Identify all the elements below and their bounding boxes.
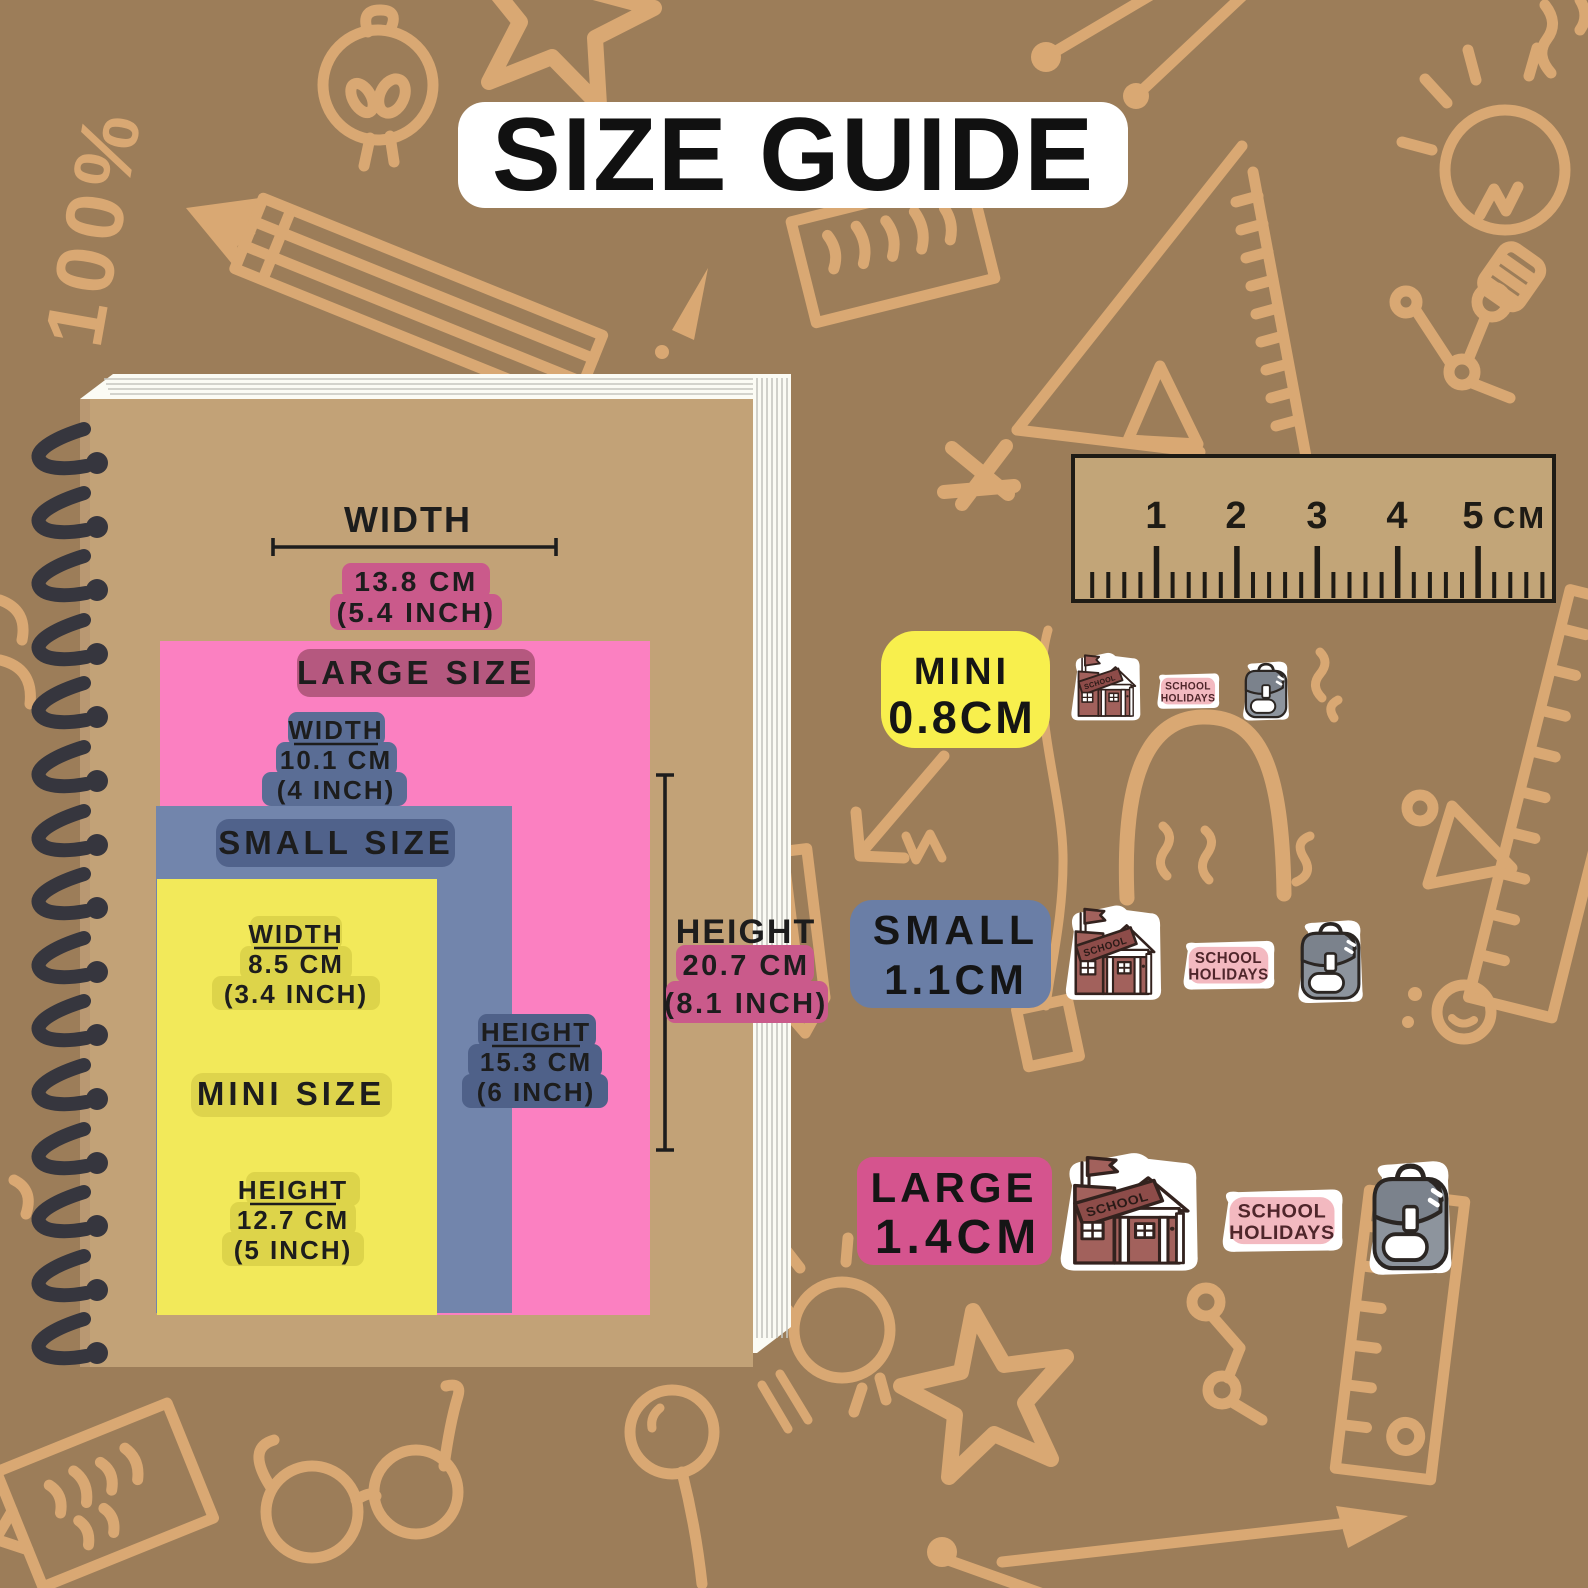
svg-text:(6 INCH): (6 INCH) [477,1077,596,1107]
svg-text:WIDTH: WIDTH [248,919,343,949]
svg-text:8.5 CM: 8.5 CM [248,949,344,979]
svg-text:10.1 CM: 10.1 CM [280,745,392,775]
svg-text:LARGE SIZE: LARGE SIZE [297,654,535,691]
svg-text:15.3 CM: 15.3 CM [480,1047,592,1077]
svg-text:SMALL: SMALL [873,907,1039,953]
svg-text:(8.1 INCH): (8.1 INCH) [664,988,828,1020]
svg-text:(5 INCH): (5 INCH) [234,1235,353,1265]
svg-text:MINI SIZE: MINI SIZE [197,1075,385,1112]
svg-text:13.8 CM: 13.8 CM [354,566,477,597]
svg-text:(4 INCH): (4 INCH) [277,775,396,805]
svg-text:0.8CM: 0.8CM [888,692,1036,743]
svg-text:LARGE: LARGE [871,1164,1038,1211]
svg-text:CM: CM [1493,500,1547,535]
svg-text:MINI: MINI [914,651,1010,693]
svg-text:4: 4 [1386,495,1407,537]
svg-text:SMALL SIZE: SMALL SIZE [218,824,454,861]
svg-text:20.7 CM: 20.7 CM [682,950,809,982]
svg-text:3: 3 [1306,495,1327,537]
svg-text:HEIGHT: HEIGHT [481,1017,591,1047]
svg-text:1.1CM: 1.1CM [884,956,1028,1003]
svg-text:SIZE GUIDE: SIZE GUIDE [492,97,1095,213]
svg-text:1: 1 [1145,495,1166,537]
svg-text:(5.4 INCH): (5.4 INCH) [337,597,496,628]
svg-text:WIDTH: WIDTH [288,715,383,745]
svg-text:12.7 CM: 12.7 CM [237,1205,349,1235]
svg-text:(3.4 INCH): (3.4 INCH) [224,979,368,1009]
svg-text:1.4CM: 1.4CM [875,1211,1041,1264]
svg-text:HEIGHT: HEIGHT [238,1175,348,1205]
svg-text:2: 2 [1225,495,1246,537]
svg-text:WIDTH: WIDTH [344,499,472,540]
svg-text:5: 5 [1462,495,1483,537]
